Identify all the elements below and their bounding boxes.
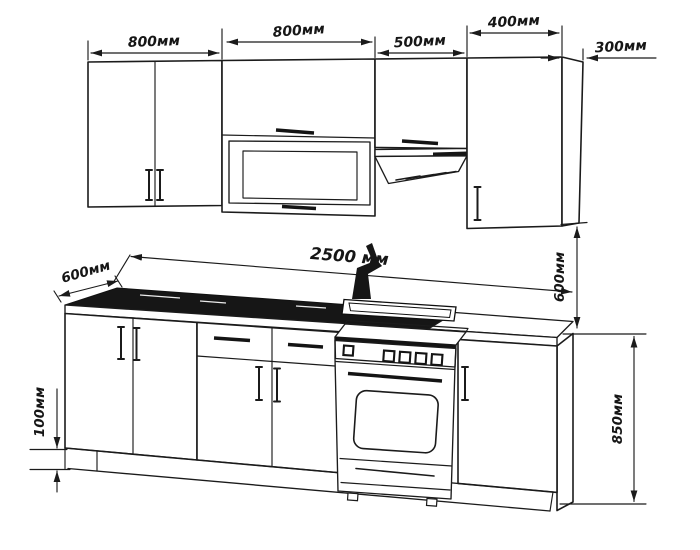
dim-label-cab1-width: 800мм (128, 33, 181, 51)
drawer-base-cabinet (197, 323, 342, 474)
range-hood-front (375, 156, 467, 184)
dim-label-base-height: 850мм (610, 394, 626, 444)
dim-label-plinth-height: 100мм (32, 387, 48, 437)
upper-cabinet-3 (375, 58, 467, 149)
upper-cabinet-4 (467, 57, 562, 229)
upper-cabinet-side-panel (562, 57, 583, 226)
dim-label-worktop-depth: 600мм (60, 258, 113, 287)
extension-line-total-left (113, 255, 130, 283)
right-base-cabinet (458, 339, 557, 492)
dim-label-upper-depth: 300мм (594, 38, 647, 57)
dim-label-cab2-width: 800мм (272, 21, 325, 41)
upper-cabinets (88, 57, 583, 229)
right-base-cabinet-side (557, 334, 573, 511)
kitchen-dimension-drawing: 800мм 800мм 500мм 400мм 300мм 2500 мм 60… (0, 0, 700, 550)
oven-window (353, 390, 439, 453)
stove (335, 321, 468, 507)
stove-knob (383, 351, 394, 362)
dim-label-cab3-width: 500мм (393, 33, 446, 52)
drawing-canvas: 800мм 800мм 500мм 400мм 300мм 2500 мм 60… (0, 0, 700, 550)
lower-flap-handle (282, 207, 316, 209)
stove-foot (348, 493, 358, 501)
stove-knob (343, 346, 353, 356)
top-dimensions: 800мм 800мм 500мм 400мм 300мм (88, 13, 656, 60)
dim-label-gap: 600мм (552, 252, 568, 302)
dim-label-cab4-width: 400мм (486, 13, 540, 32)
extension-ticks-plinth (30, 450, 70, 470)
stove-knob (415, 353, 426, 364)
base-cabinets (65, 314, 573, 512)
stove-knob (431, 354, 442, 365)
sink-base-cabinet (65, 314, 197, 461)
stove-knob (399, 352, 410, 363)
stove-foot (427, 499, 437, 507)
